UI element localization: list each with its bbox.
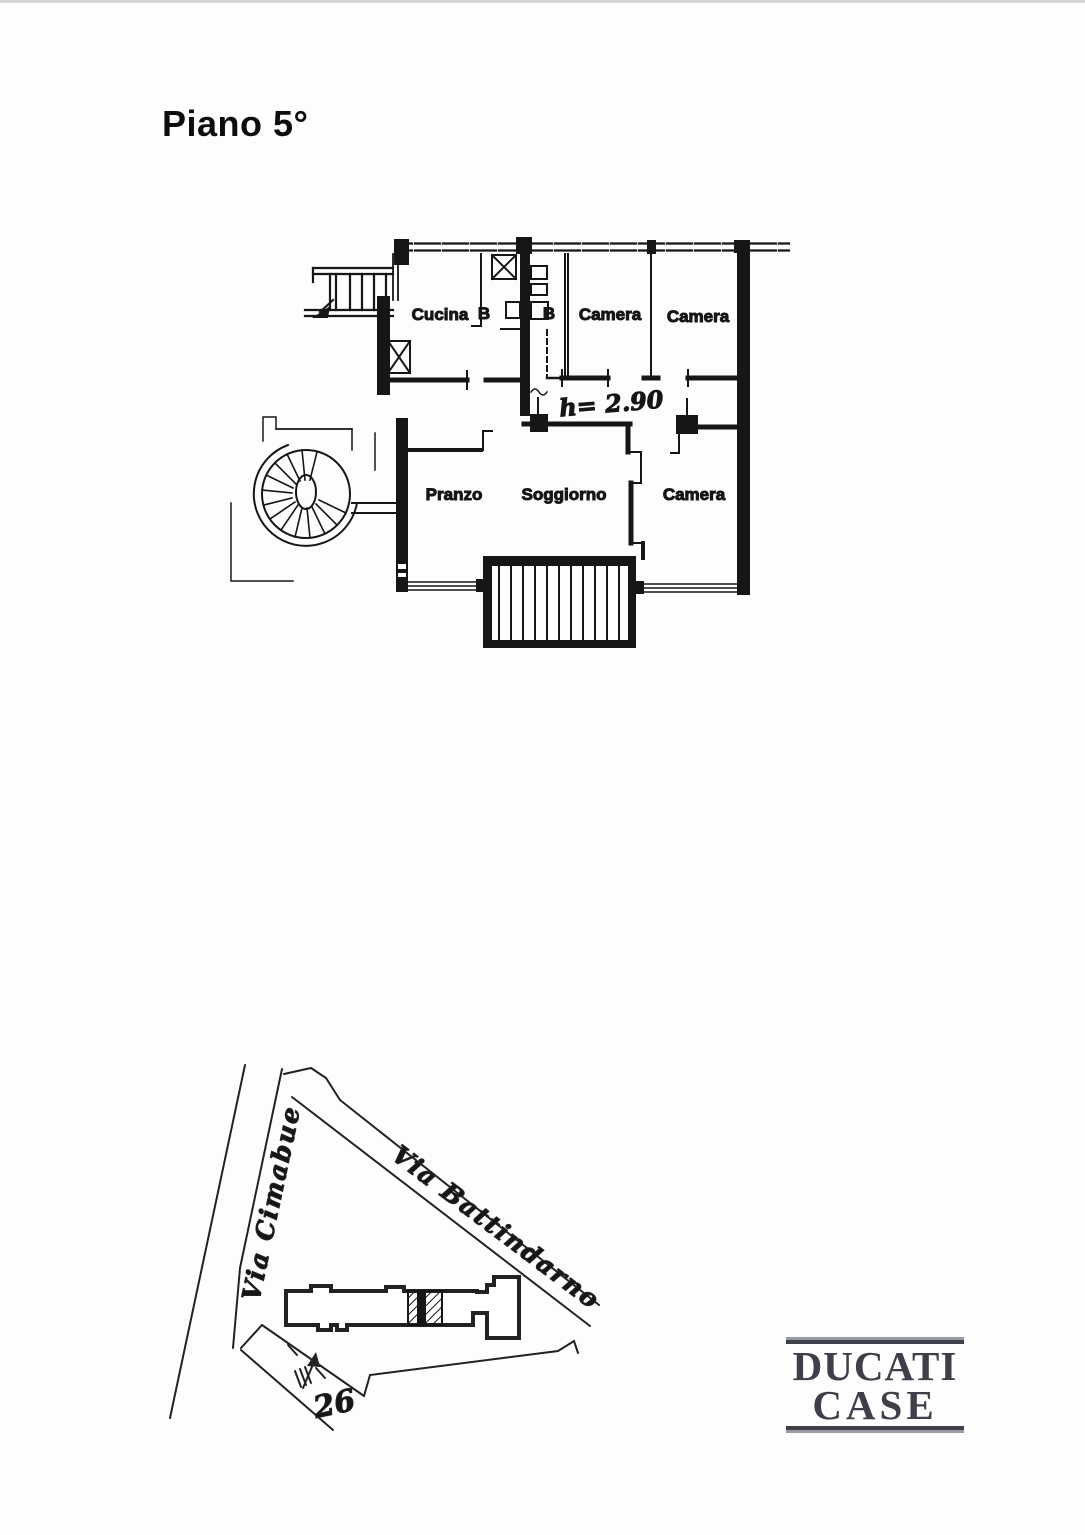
south-window-band-left	[408, 579, 484, 592]
access-road-lines	[241, 1325, 578, 1430]
room-label-pranzo: Pranzo	[426, 485, 483, 504]
shower-icon	[492, 255, 516, 279]
street-label-via-cimabue: Via Cimabue	[237, 1103, 307, 1304]
stair-direction-arrow	[312, 306, 330, 318]
page-title: Piano 5°	[162, 103, 308, 145]
subject-unit-hatch	[408, 1291, 442, 1325]
east-wall	[737, 243, 750, 595]
spiral-bridge	[352, 503, 398, 513]
logo-line-2: CASE	[786, 1386, 964, 1424]
room-label-bagno-2: B	[543, 304, 555, 323]
north-window-band	[396, 244, 789, 251]
terrace-steps	[483, 556, 636, 648]
site-plan: Via Cimabue Via Battindarno 26	[150, 1050, 670, 1470]
logo-line-1: DUCATI	[786, 1346, 964, 1386]
civic-number: 26	[309, 1383, 358, 1426]
agency-logo: DUCATI CASE	[786, 1340, 964, 1430]
room-label-bagno-1: B	[478, 304, 490, 323]
room-label-camera-3: Camera	[663, 485, 726, 504]
floor-plan: Cucina B B Camera Camera Pranzo Soggiorn…	[220, 225, 810, 665]
ceiling-height-note: h= 2.90	[558, 385, 665, 423]
room-label-camera-2: Camera	[667, 307, 730, 326]
building-footprint	[286, 1277, 519, 1338]
spiral-stair	[231, 417, 398, 581]
south-window-band-right	[636, 581, 748, 594]
scanned-floorplan-page: { "page": { "title": "Piano 5°" }, "floo…	[0, 0, 1085, 1535]
dining-north-wall	[406, 431, 492, 450]
spiral-landing-outline	[231, 417, 375, 581]
room-label-camera-1: Camera	[579, 305, 642, 324]
bedroom3-flue	[671, 399, 737, 453]
kitchen-window-icon	[388, 341, 410, 373]
bath-partitions	[472, 254, 565, 416]
room-label-cucina: Cucina	[412, 305, 469, 324]
living-room-east-wall	[628, 424, 643, 558]
room-label-soggiorno: Soggiorno	[522, 485, 607, 504]
scan-artifact-line	[0, 0, 1085, 3]
